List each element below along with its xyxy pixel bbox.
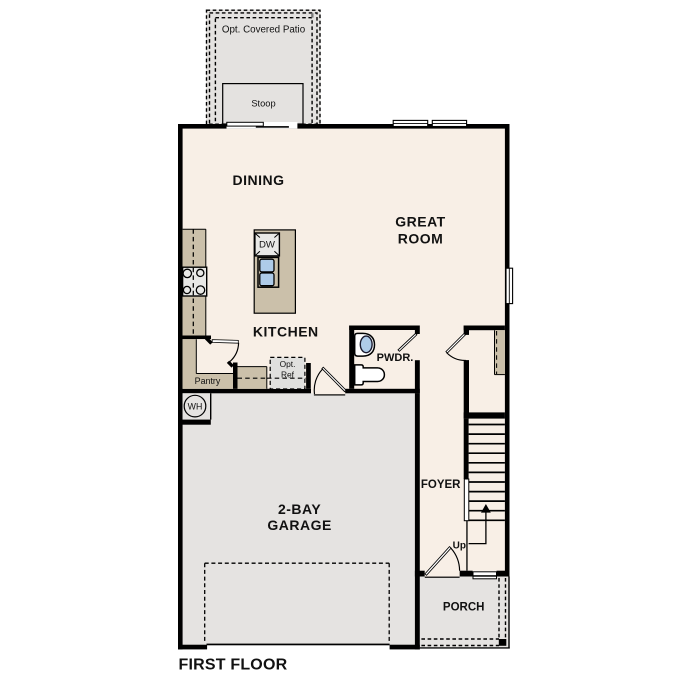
svg-text:PORCH: PORCH [443, 602, 485, 614]
svg-text:Up: Up [453, 540, 466, 551]
svg-text:KITCHEN: KITCHEN [253, 324, 319, 340]
svg-text:FIRST FLOOR: FIRST FLOOR [179, 657, 288, 674]
svg-text:ROOM: ROOM [398, 231, 444, 247]
svg-text:Stoop: Stoop [251, 99, 275, 109]
svg-text:Opt. Covered Patio: Opt. Covered Patio [222, 25, 306, 36]
svg-text:GREAT: GREAT [395, 214, 445, 230]
svg-text:PWDR.: PWDR. [377, 352, 414, 364]
svg-text:WH: WH [188, 401, 203, 411]
svg-text:Pantry: Pantry [195, 376, 221, 386]
svg-text:2-BAY: 2-BAY [278, 501, 321, 517]
svg-text:DW: DW [259, 239, 276, 250]
svg-text:GARAGE: GARAGE [267, 517, 331, 533]
svg-text:Opt.: Opt. [280, 359, 296, 369]
svg-text:DINING: DINING [233, 172, 285, 188]
svg-text:Ref: Ref [281, 369, 295, 379]
svg-text:FOYER: FOYER [421, 479, 461, 491]
